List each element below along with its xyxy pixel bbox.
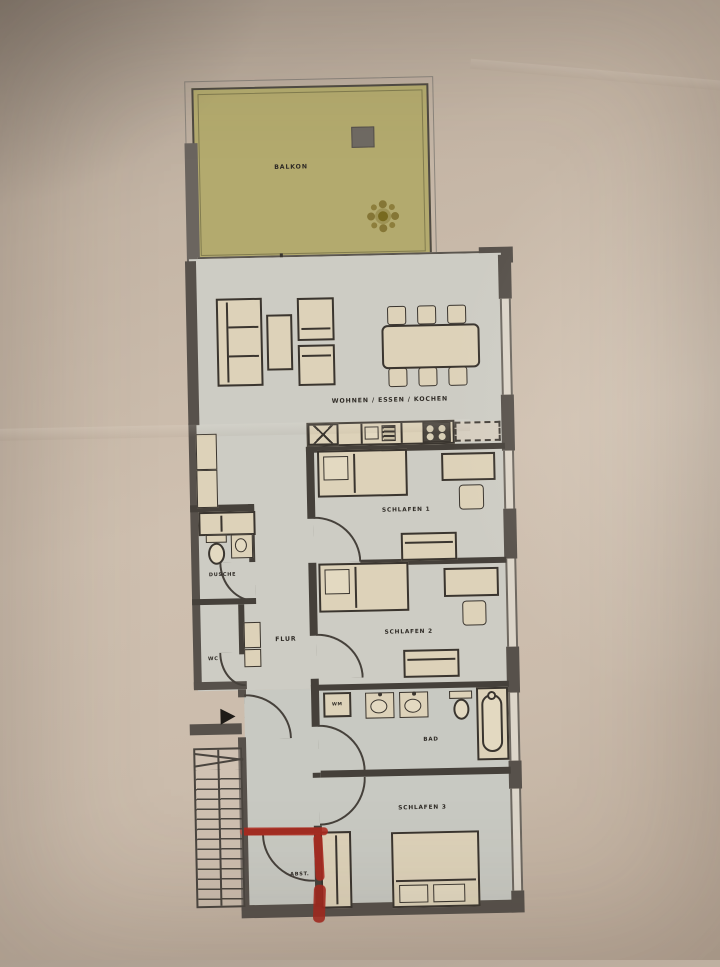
- balcony-inner-line: [197, 89, 425, 256]
- sofa: [216, 298, 264, 387]
- washing-machine-label: WM: [332, 702, 343, 707]
- bedroom2-label: SCHLAFEN 2: [384, 628, 433, 635]
- shower-room-label: DUSCHE: [209, 572, 236, 578]
- bath-sink-1: [365, 692, 395, 719]
- dining-chair: [447, 305, 466, 324]
- balcony-label: BALKON: [274, 163, 308, 171]
- wc-label: WC: [208, 656, 219, 662]
- balcony-left-wall: [184, 143, 200, 265]
- kitchen-appliance-icon: [307, 423, 338, 446]
- window-bedroom2: [505, 559, 518, 647]
- pillow: [433, 884, 465, 903]
- dining-chair: [448, 366, 467, 385]
- armchair-1: [297, 297, 335, 341]
- toilet-tank-bath: [449, 690, 472, 698]
- bed-2: [318, 562, 409, 613]
- dining-chair: [417, 305, 436, 324]
- staircase: [193, 747, 245, 908]
- dining-table: [381, 323, 480, 369]
- desk-1: [441, 452, 496, 481]
- hall-label: FLUR: [275, 636, 296, 643]
- wardrobe-1: [401, 532, 458, 561]
- bedroom1-label: SCHLAFEN 1: [382, 506, 431, 513]
- bathtub: [476, 687, 510, 761]
- window-bath: [508, 692, 520, 760]
- armchair-2: [298, 344, 336, 386]
- outer-wall-right-6: [511, 890, 524, 912]
- outer-wall-right-1: [498, 255, 512, 299]
- red-marker-vertical-2: [313, 885, 326, 923]
- dining-chair: [418, 367, 437, 386]
- hall-cabinet-2: [196, 470, 218, 508]
- toilet-tank-shower-room: [206, 535, 227, 543]
- landing-wall: [190, 723, 242, 735]
- storage-label: ABST.: [290, 871, 309, 877]
- cooktop-icon: [422, 422, 450, 443]
- chair-2: [462, 600, 487, 625]
- coffee-table: [266, 314, 293, 371]
- balcony-floor: [191, 83, 432, 262]
- photo-of-floor-plan: { "document": { "type": "apartment-floor…: [0, 0, 720, 960]
- dining-chair: [387, 306, 406, 325]
- window-bedroom1: [503, 451, 515, 509]
- counter-dashed-extension: [454, 421, 500, 442]
- sink-shower-room: [231, 534, 253, 558]
- bath-label: BAD: [423, 736, 438, 742]
- window-living: [500, 299, 513, 395]
- shower-tray: [198, 511, 255, 536]
- bath-sink-2: [399, 691, 429, 718]
- bed-3: [391, 830, 481, 908]
- balcony-column: [351, 126, 374, 147]
- duct-box-2: [244, 649, 261, 667]
- kitchen-sink-icon: [364, 426, 378, 439]
- kitchen-drainer-icon: [381, 425, 395, 441]
- counter-divider: [360, 424, 362, 444]
- desk-2: [443, 567, 499, 597]
- pillow: [324, 569, 350, 595]
- bed-1: [317, 449, 408, 498]
- outer-wall-right-3: [503, 508, 517, 558]
- wall-hall-1: [306, 447, 316, 519]
- chair-1: [459, 484, 485, 510]
- window-bedroom3: [510, 788, 523, 890]
- bedroom3-label: SCHLAFEN 3: [398, 804, 447, 811]
- floor-plan: BALKON: [0, 0, 720, 967]
- outer-wall-right-5: [508, 760, 522, 788]
- counter-divider: [400, 423, 402, 443]
- duct-box-1: [244, 622, 262, 648]
- wall-hall-2: [308, 563, 318, 636]
- hall-cabinet-1: [196, 434, 218, 470]
- dining-chair: [388, 368, 407, 387]
- pillow: [323, 456, 348, 481]
- entrance-arrow-icon: [220, 708, 235, 724]
- wardrobe-2: [403, 649, 460, 678]
- pillow: [399, 884, 428, 903]
